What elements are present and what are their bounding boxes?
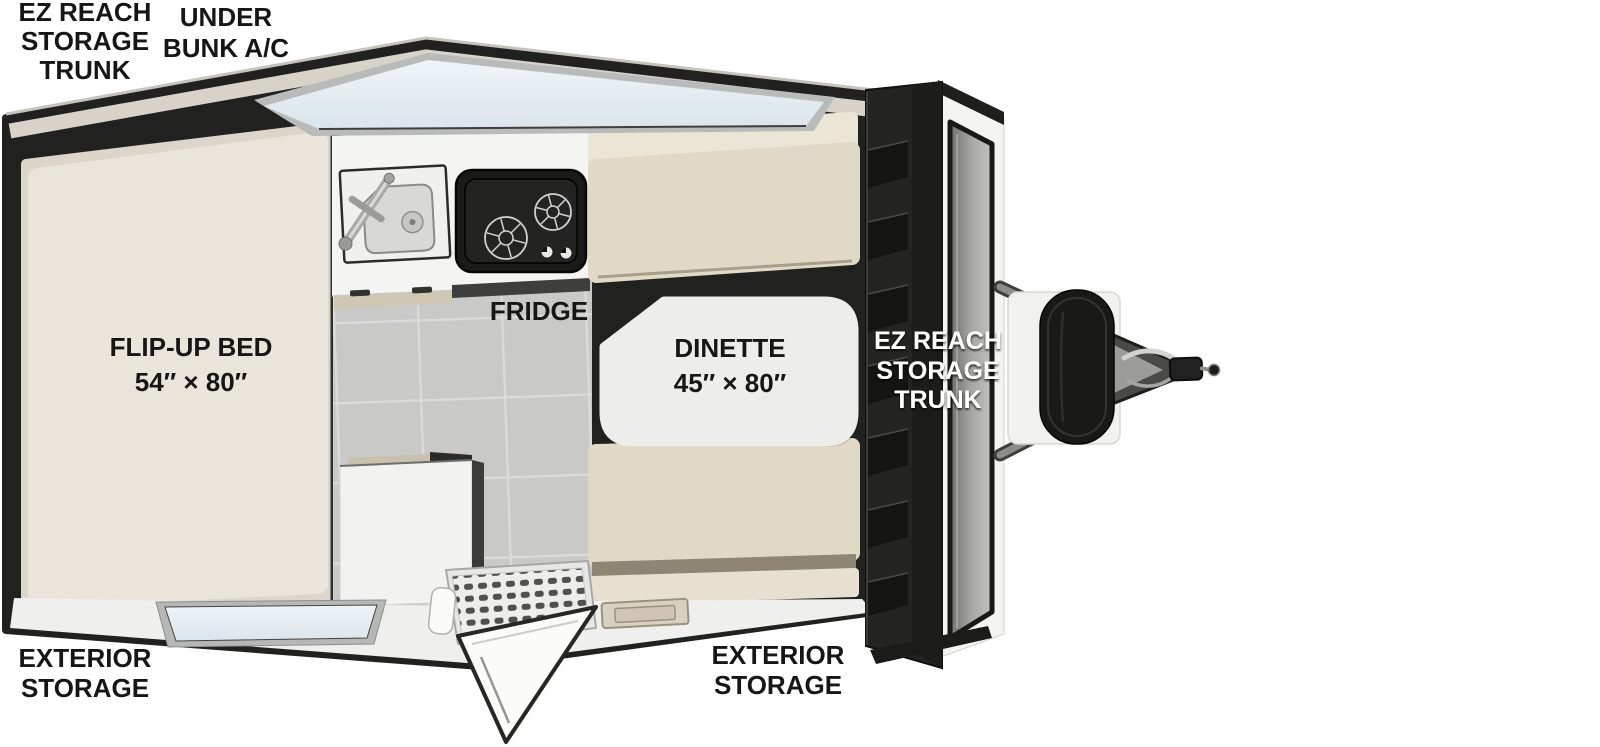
label-line: TRUNK: [894, 386, 982, 414]
side-window: [156, 600, 386, 647]
drawer-handle: [350, 289, 370, 296]
bench-lower-cushion: [593, 572, 855, 601]
label-line: EXTERIOR: [712, 640, 845, 670]
floorplan-svg: EZ REACH STORAGE TRUNK UNDER BUNK A/C FL…: [0, 0, 1600, 747]
floorplan-page: EZ REACH STORAGE TRUNK UNDER BUNK A/C FL…: [0, 0, 1600, 747]
label-line: EZ REACH: [874, 327, 1002, 355]
label-fridge: FRIDGE: [490, 296, 588, 326]
label-exterior-storage-front: EXTERIOR STORAGE: [712, 640, 845, 700]
stove-inner: [465, 179, 577, 263]
trailer-tongue: [1000, 287, 1220, 455]
step-hatch: [601, 599, 688, 628]
label-line: EZ REACH: [19, 0, 152, 27]
label-line: UNDER: [180, 2, 273, 32]
bench-seat-cushion: [596, 150, 852, 275]
label-exterior-storage-left: EXTERIOR STORAGE: [19, 643, 152, 703]
label-line: 45″ × 80″: [674, 368, 786, 398]
mat-flange: [428, 587, 457, 635]
label-line: FRIDGE: [490, 296, 588, 326]
label-line: STORAGE: [714, 670, 842, 700]
label-line: FLIP-UP BED: [110, 332, 273, 362]
label-line: 54″ × 80″: [135, 367, 247, 397]
drawer-handle: [412, 286, 432, 293]
label-line: TRUNK: [40, 55, 131, 85]
label-line: STORAGE: [876, 357, 999, 385]
bench-seat-cushion: [596, 446, 852, 560]
label-line: DINETTE: [674, 333, 785, 363]
hatch-inner: [615, 605, 676, 622]
sink: [335, 165, 450, 263]
label-line: STORAGE: [21, 673, 149, 703]
label-line: BUNK A/C: [163, 33, 289, 63]
dinette-bench-bottom: [592, 446, 856, 601]
window-glass: [165, 605, 377, 641]
label-line: STORAGE: [21, 26, 149, 56]
hitch-coupler: [1170, 357, 1220, 381]
label-rear-trunk: EZ REACH STORAGE TRUNK: [19, 0, 152, 85]
label-line: EXTERIOR: [19, 643, 152, 673]
stove: [456, 170, 586, 272]
label-under-bunk-ac: UNDER BUNK A/C: [163, 2, 289, 63]
dinette-bench-top: [594, 118, 852, 277]
